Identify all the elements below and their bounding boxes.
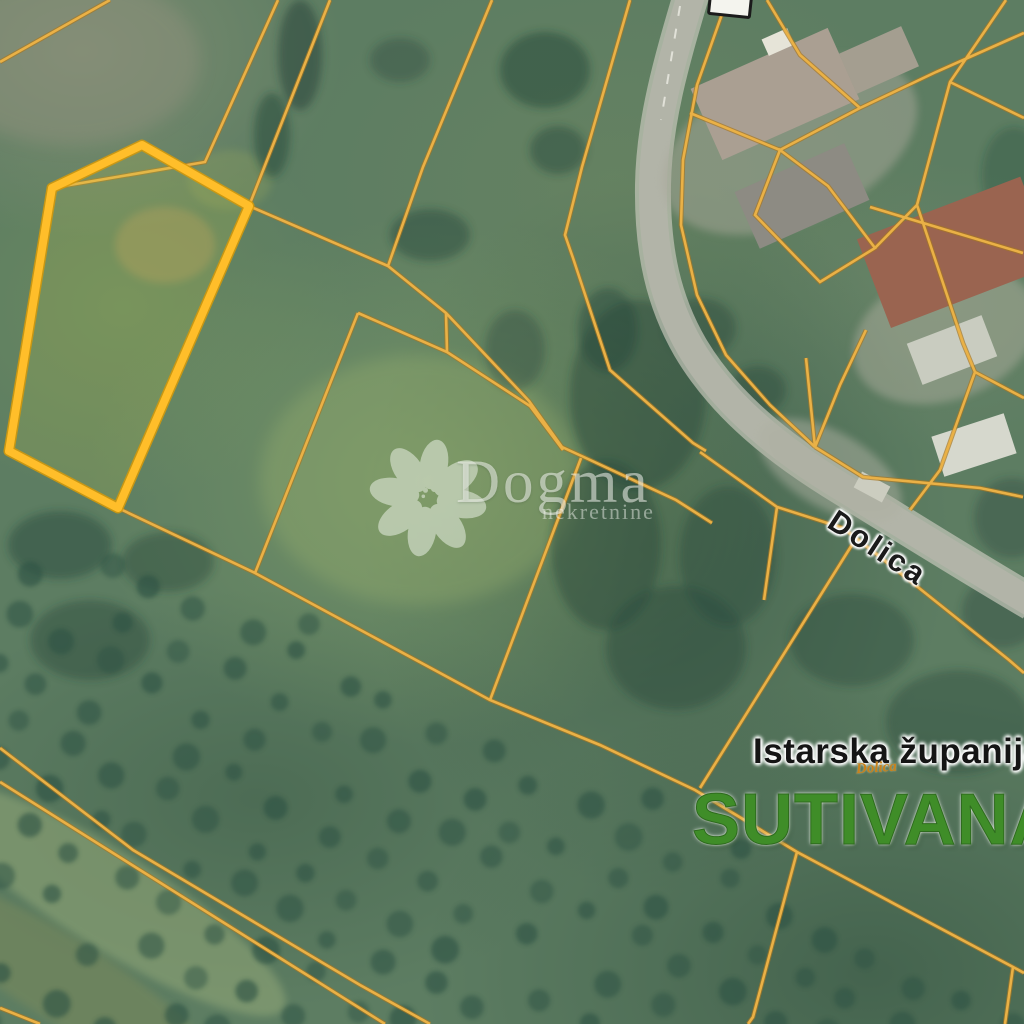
- settlement-label: SUTIVANAC: [692, 779, 1024, 861]
- satellite-map[interactable]: Dolica Istarska županija Dolica SUTIVANA…: [0, 0, 1024, 1024]
- watermark-suffix: nekretnine: [542, 499, 655, 525]
- street-name-small-label: Dolica: [855, 759, 897, 779]
- highlighted-parcel: [9, 145, 249, 508]
